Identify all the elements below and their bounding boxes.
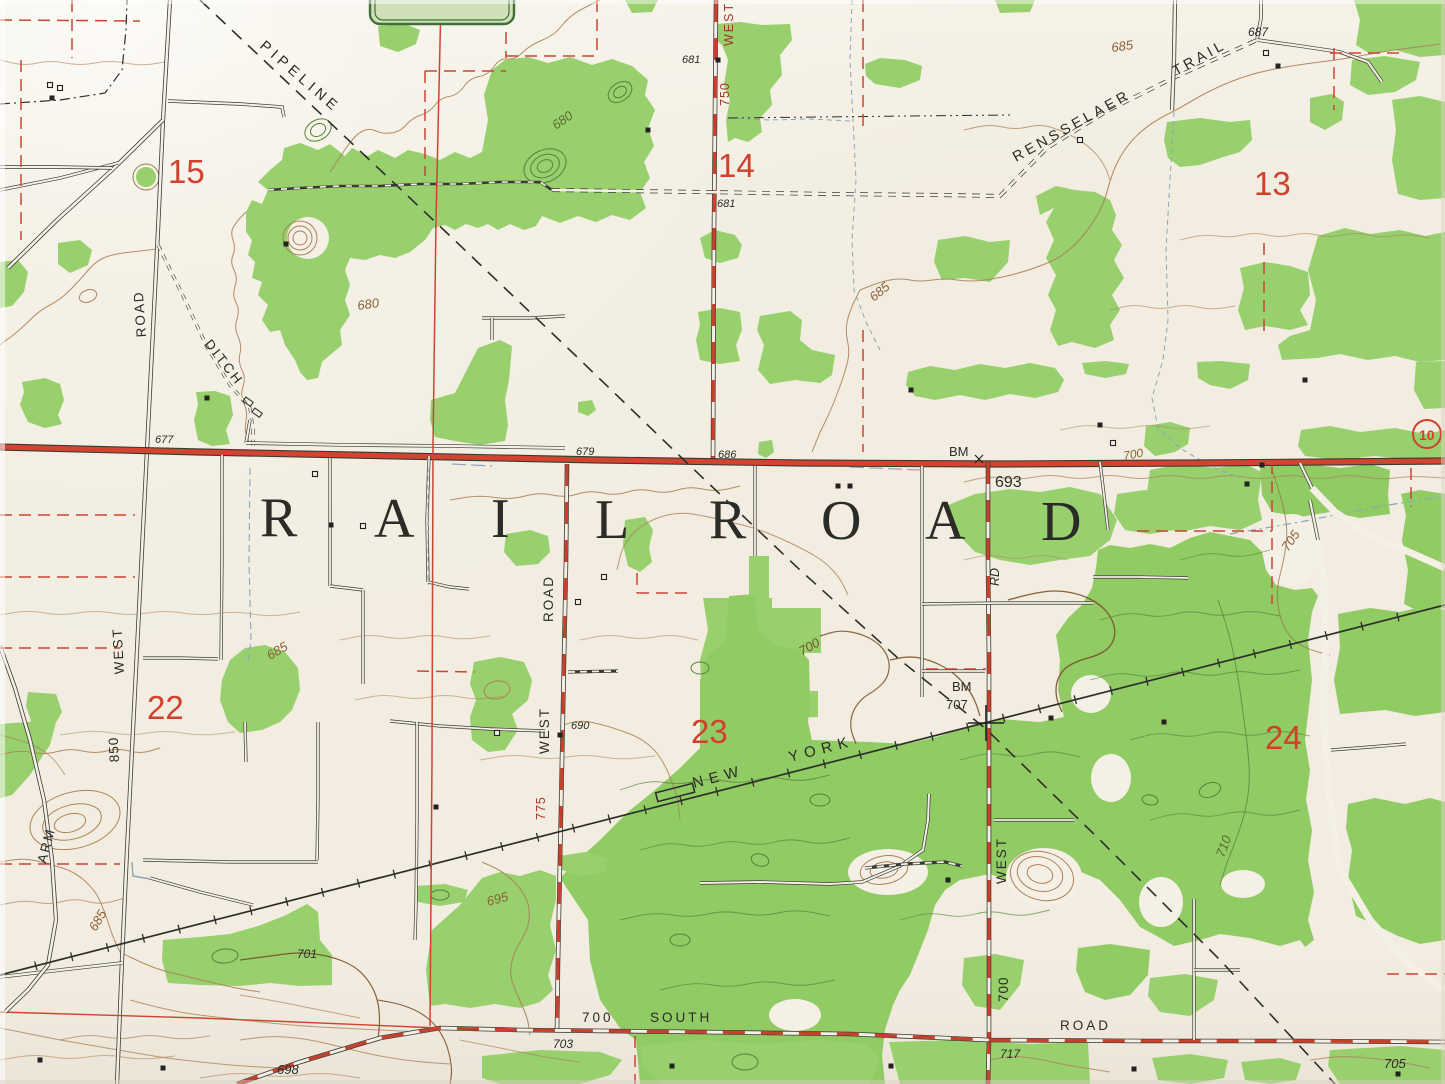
svg-text:680: 680 <box>356 295 380 313</box>
svg-text:A: A <box>925 490 966 552</box>
svg-text:677: 677 <box>155 434 174 446</box>
svg-text:698: 698 <box>277 1062 299 1077</box>
svg-text:SOUTH: SOUTH <box>650 1010 712 1025</box>
svg-text:686: 686 <box>718 449 737 461</box>
svg-text:700: 700 <box>582 1010 614 1025</box>
svg-text:I: I <box>491 488 510 550</box>
svg-text:BM: BM <box>952 679 972 694</box>
svg-text:693: 693 <box>995 474 1022 491</box>
svg-text:R: R <box>709 489 747 551</box>
svg-text:700: 700 <box>996 976 1011 1002</box>
svg-text:23: 23 <box>691 713 728 750</box>
svg-text:13: 13 <box>1254 165 1291 202</box>
svg-text:850: 850 <box>106 736 122 762</box>
svg-text:690: 690 <box>571 720 590 732</box>
svg-text:22: 22 <box>147 689 184 726</box>
svg-text:750: 750 <box>718 82 732 106</box>
svg-text:A: A <box>374 488 415 550</box>
svg-text:681: 681 <box>682 54 700 66</box>
svg-text:775: 775 <box>534 796 548 820</box>
svg-text:ROAD: ROAD <box>1060 1018 1111 1033</box>
svg-text:RD: RD <box>988 568 1002 586</box>
svg-text:BM: BM <box>949 444 969 459</box>
svg-text:10: 10 <box>1419 427 1435 443</box>
svg-text:705: 705 <box>1384 1056 1406 1071</box>
svg-text:WEST: WEST <box>110 627 127 675</box>
svg-text:685: 685 <box>1110 37 1134 55</box>
svg-text:717: 717 <box>1000 1047 1021 1061</box>
svg-text:O: O <box>821 490 861 552</box>
svg-text:703: 703 <box>553 1037 573 1051</box>
svg-text:14: 14 <box>718 147 755 184</box>
svg-text:707: 707 <box>946 697 968 712</box>
svg-text:L: L <box>595 489 629 551</box>
svg-text:701: 701 <box>297 947 317 961</box>
svg-text:687: 687 <box>1248 25 1269 39</box>
svg-text:WEST: WEST <box>994 837 1009 884</box>
svg-text:681: 681 <box>717 198 735 210</box>
svg-text:WEST: WEST <box>722 2 736 46</box>
svg-text:24: 24 <box>1265 719 1302 756</box>
svg-text:R: R <box>260 487 298 549</box>
svg-text:D: D <box>1041 491 1081 553</box>
svg-text:ROAD: ROAD <box>541 575 556 622</box>
svg-text:679: 679 <box>576 446 594 458</box>
svg-text:WEST: WEST <box>537 707 552 754</box>
svg-text:15: 15 <box>168 153 205 190</box>
